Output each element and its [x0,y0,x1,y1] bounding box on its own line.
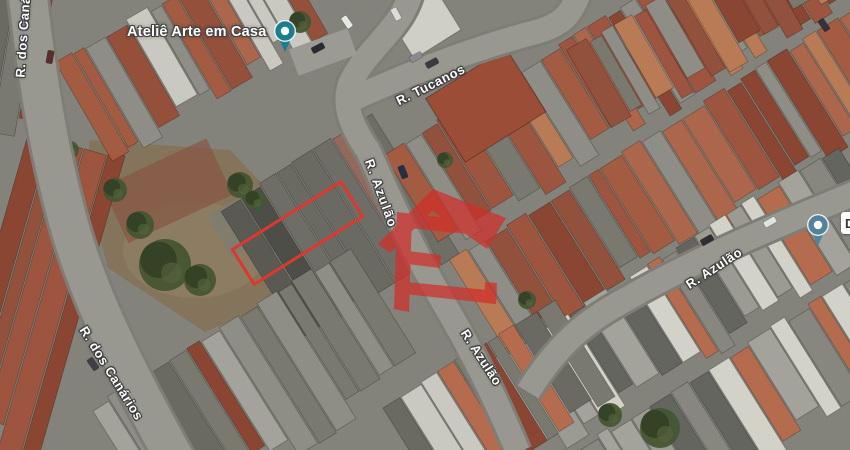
place-pin-atelie-icon[interactable] [273,19,297,53]
satellite-imagery [0,0,850,450]
satellite-map[interactable]: R. dos Canários R. Tucanos R. Azulão R. … [0,0,850,450]
partial-place-chip[interactable]: D [841,212,850,234]
place-label-atelie[interactable]: Ateliê Arte em Casa [127,24,266,40]
place-pin-right-icon[interactable] [806,213,830,247]
